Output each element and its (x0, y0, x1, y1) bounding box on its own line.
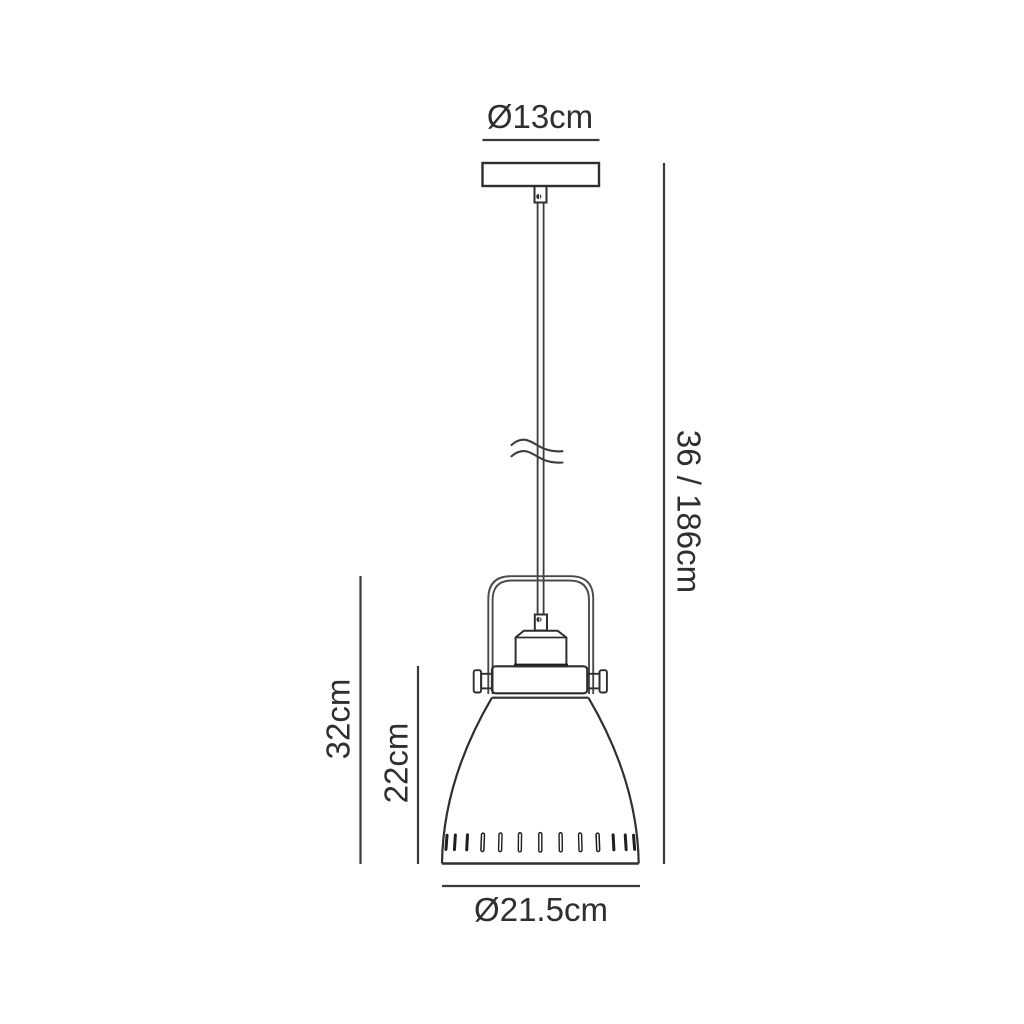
svg-text:Ø13cm: Ø13cm (487, 98, 593, 135)
svg-text:22cm: 22cm (378, 723, 415, 804)
svg-text:36 / 186cm: 36 / 186cm (671, 430, 708, 593)
svg-text:32cm: 32cm (320, 679, 357, 760)
svg-text:Ø21.5cm: Ø21.5cm (474, 891, 608, 928)
